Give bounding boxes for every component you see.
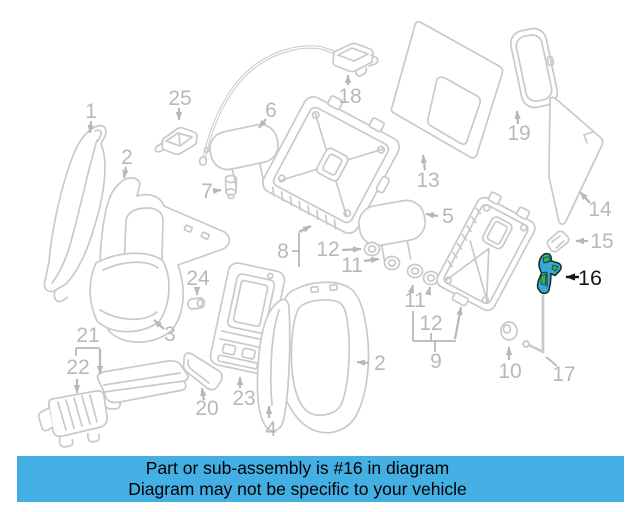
callout-4: 4 xyxy=(265,418,277,441)
callout-2: 2 xyxy=(121,146,133,169)
push-pin xyxy=(385,257,400,270)
part-22-tray xyxy=(39,391,107,447)
callout-1: 1 xyxy=(85,100,97,123)
callout-13: 13 xyxy=(416,169,439,192)
callout-9: 9 xyxy=(430,350,442,373)
part-25-bracket xyxy=(155,128,197,155)
callout-18: 18 xyxy=(338,85,361,108)
callout-12: 12 xyxy=(419,312,442,335)
banner-line2: Diagram may not be specific to your vehi… xyxy=(128,479,466,500)
callout-7: 7 xyxy=(201,180,213,203)
callout-21: 21 xyxy=(76,324,99,347)
callout-11: 11 xyxy=(341,254,363,277)
callout-20: 20 xyxy=(195,397,218,420)
part-13-panel xyxy=(391,22,502,158)
callout-2: 2 xyxy=(374,352,386,375)
callout-15: 15 xyxy=(590,230,613,253)
part-24-stud xyxy=(188,298,205,309)
highlighted-part-label: 16 xyxy=(578,266,602,290)
callout-6: 6 xyxy=(265,99,277,122)
part-10-grommet xyxy=(501,322,517,340)
diagram-canvas: 1225671813195141581211111291017224321222… xyxy=(0,0,640,512)
part-3-seat-back-center xyxy=(90,253,169,331)
callout-12: 12 xyxy=(316,238,339,261)
highlight-callout: 16 xyxy=(566,266,602,290)
callout-17: 17 xyxy=(552,363,575,386)
callout-14: 14 xyxy=(588,198,612,221)
callout-3: 3 xyxy=(164,323,176,346)
callout-22: 22 xyxy=(66,356,89,379)
parts-diagram-page: 1225671813195141581211111291017224321222… xyxy=(0,0,640,512)
part-16-highlighted-bracket xyxy=(538,254,561,294)
callout-8: 8 xyxy=(277,240,289,263)
info-banner: Part or sub-assembly is #16 in diagram D… xyxy=(17,456,624,502)
callout-5: 5 xyxy=(442,205,454,228)
callout-10: 10 xyxy=(498,360,521,383)
banner-line1: Part or sub-assembly is #16 in diagram xyxy=(146,458,449,479)
push-pin xyxy=(365,243,380,256)
callout-25: 25 xyxy=(168,87,191,110)
part-21-lid xyxy=(98,361,188,409)
push-pin xyxy=(408,265,423,278)
callout-24: 24 xyxy=(186,267,210,290)
part-17-rod xyxy=(523,296,543,352)
callout-23: 23 xyxy=(232,387,255,410)
push-pin-fasteners xyxy=(365,243,439,285)
callout-11: 11 xyxy=(404,289,426,312)
part-15-clip xyxy=(547,231,569,252)
callout-19: 19 xyxy=(507,122,530,145)
push-pin xyxy=(424,272,439,285)
